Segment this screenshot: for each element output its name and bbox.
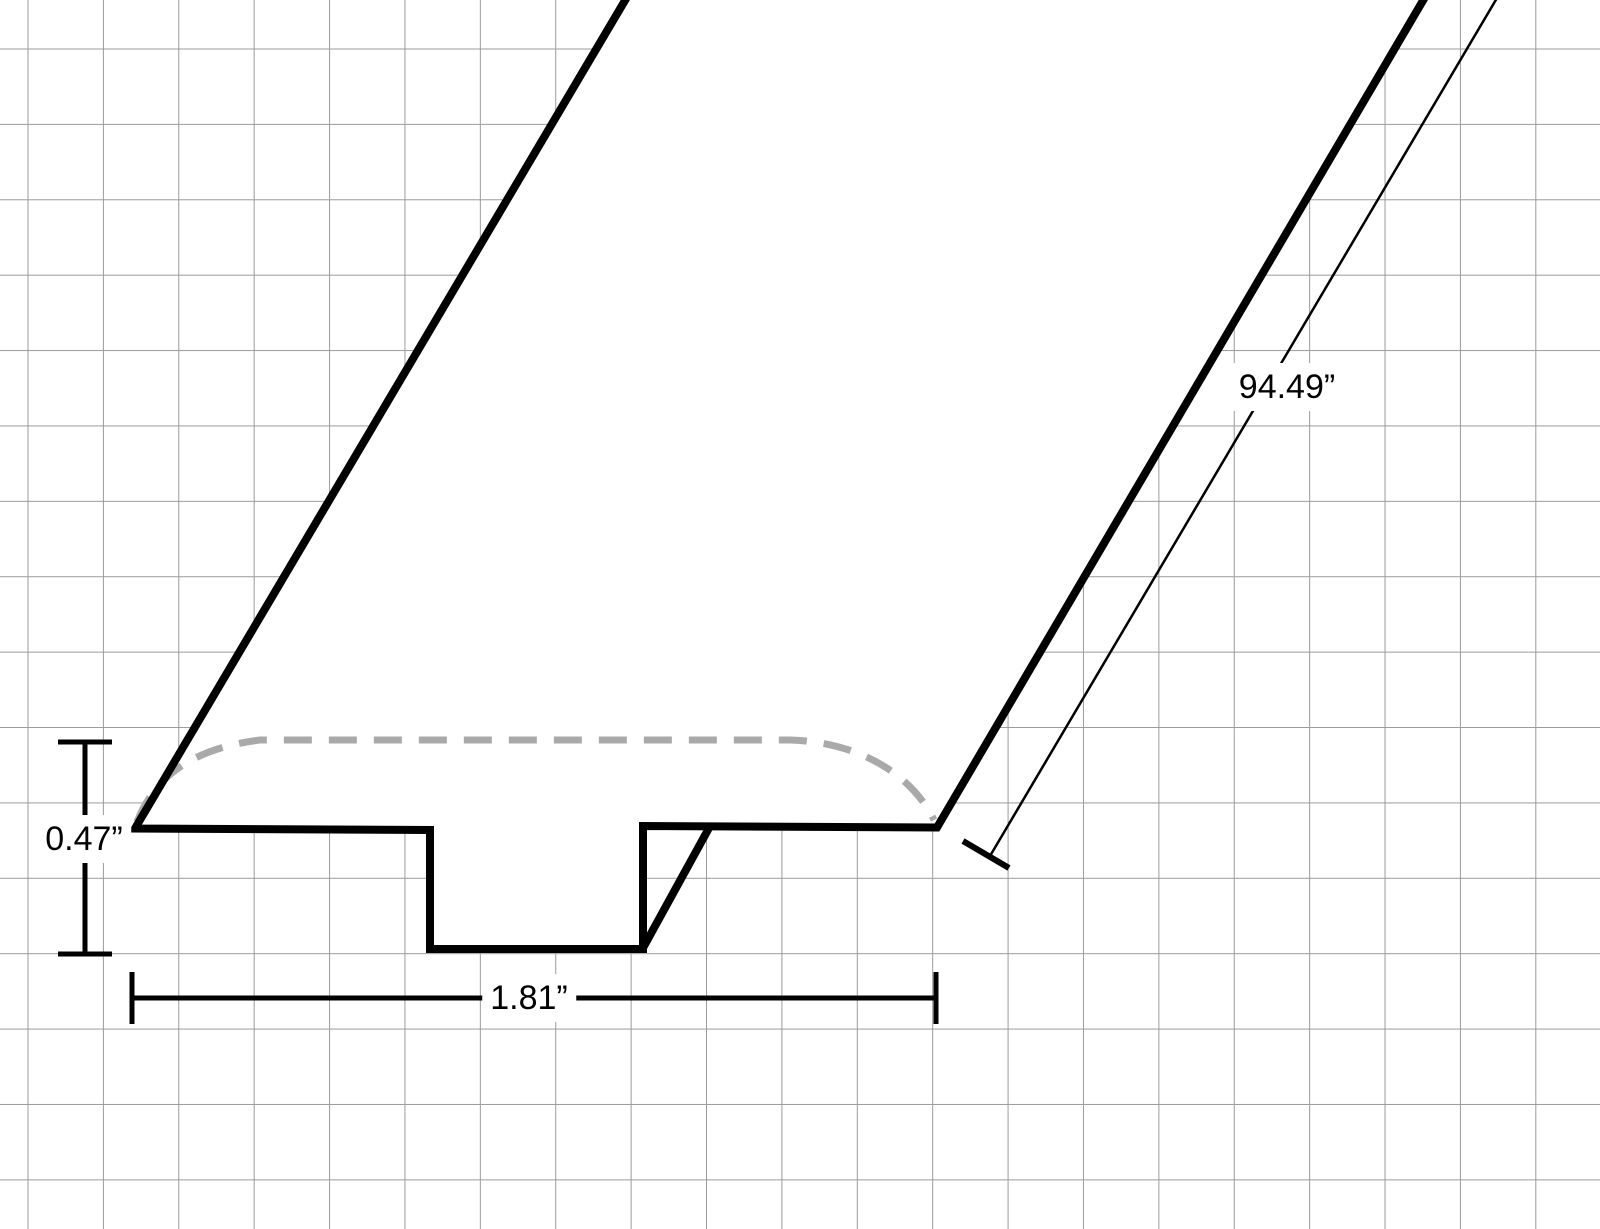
notch-back-edge — [643, 828, 709, 948]
length-dimension-end-tick — [963, 841, 1009, 868]
height-dimension-label: 0.47” — [37, 815, 131, 863]
molding-dimension-diagram: 0.47” 1.81” 94.49” — [0, 0, 1600, 1229]
width-dimension-label: 1.81” — [482, 974, 576, 1022]
profile-drawing — [0, 0, 1600, 1229]
length-dimension-label: 94.49” — [1231, 363, 1343, 411]
molding-silhouette-fill — [135, 0, 1428, 949]
